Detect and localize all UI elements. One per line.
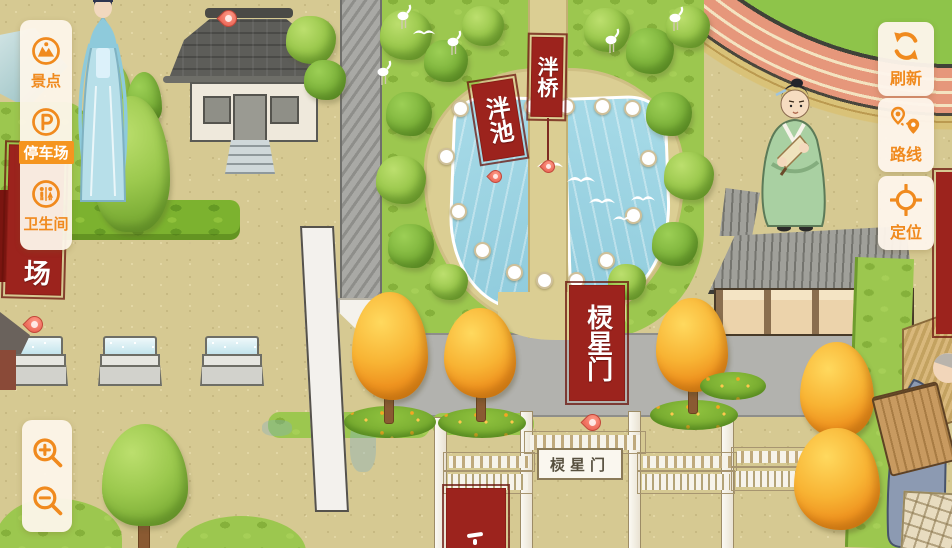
scholar-figure xyxy=(748,78,840,236)
house-door[interactable] xyxy=(233,94,267,144)
corridor-roof xyxy=(340,0,382,300)
marker-banner-panqiao[interactable]: 泮桥 xyxy=(531,38,562,117)
tree xyxy=(376,156,426,204)
egret-icon xyxy=(376,60,392,87)
zoom-control-panel xyxy=(22,420,72,532)
tree xyxy=(652,222,698,266)
grass-patch xyxy=(176,516,306,548)
filter-label: 停车场 xyxy=(19,141,74,164)
filter-label: 景点 xyxy=(31,70,61,91)
wall-corner xyxy=(0,350,16,390)
bird-icon xyxy=(630,192,656,204)
gate-plaque-text: 棂星门 xyxy=(550,454,610,475)
stone-bench xyxy=(98,336,162,388)
zoom-out-icon[interactable] xyxy=(30,483,64,517)
button-label: 刷新 xyxy=(890,65,922,89)
egret-icon xyxy=(604,28,620,55)
statue-figure xyxy=(70,0,136,210)
bird-icon xyxy=(588,194,616,207)
poi-filter-panel: 景点 停车场 卫生间 xyxy=(20,20,72,250)
banner-stroke xyxy=(473,539,477,545)
filter-label: 卫生间 xyxy=(23,213,68,234)
pond-post xyxy=(450,203,467,220)
tree xyxy=(388,224,434,268)
locate-button[interactable]: 定位 xyxy=(878,176,934,250)
toilet-icon xyxy=(31,179,61,209)
tree xyxy=(386,92,432,136)
gate-plaque: 棂星门 xyxy=(537,448,623,480)
marker-banner-lingxingmen[interactable]: 棂星门 xyxy=(570,286,624,400)
marker-banner-text: 场 xyxy=(19,259,48,287)
gate-rail xyxy=(637,470,735,494)
brick-path xyxy=(900,491,952,548)
bird-icon xyxy=(566,172,596,186)
egret-icon xyxy=(446,30,462,57)
bird-icon xyxy=(412,26,436,38)
banner-tassel xyxy=(547,118,549,160)
pond-post xyxy=(640,150,657,167)
bird-icon xyxy=(612,212,636,224)
pond-post xyxy=(452,100,469,117)
egret-icon xyxy=(396,4,412,31)
grass-mound xyxy=(700,372,766,400)
tree xyxy=(664,152,714,200)
route-button[interactable]: 路线 xyxy=(878,98,934,172)
refresh-button[interactable]: 刷新 xyxy=(878,22,934,96)
tree xyxy=(304,60,346,100)
button-label: 路线 xyxy=(890,141,922,165)
pond-post xyxy=(598,252,615,269)
pond-post xyxy=(536,272,553,289)
house-steps xyxy=(225,140,275,174)
gate-beam xyxy=(637,452,737,472)
pond-post xyxy=(506,264,523,281)
marker-banner-text: 棂星门 xyxy=(583,304,610,382)
filter-parking-button[interactable]: 停车场 xyxy=(19,107,74,164)
pond-post xyxy=(474,242,491,259)
scenic-icon xyxy=(31,36,61,66)
house-window xyxy=(270,96,299,124)
locate-icon xyxy=(890,184,922,216)
tree xyxy=(646,92,692,136)
marker-banner-text: 泮桥 xyxy=(536,56,559,98)
house-window xyxy=(203,96,231,124)
marker-banner-text: 泮池 xyxy=(482,94,514,145)
filter-scenic-button[interactable]: 景点 xyxy=(31,36,61,91)
big-tree xyxy=(102,424,188,526)
scenic-map-app: 棂星门 xyxy=(0,0,952,548)
tree xyxy=(430,264,468,300)
route-icon xyxy=(890,106,922,138)
banner-stroke xyxy=(467,532,483,538)
banner-edge-right xyxy=(936,172,952,334)
parking-icon xyxy=(31,107,61,137)
filter-toilet-button[interactable]: 卫生间 xyxy=(23,179,68,234)
pond-post xyxy=(594,98,611,115)
map-canvas[interactable]: 棂星门 xyxy=(0,0,952,548)
wall-shadow xyxy=(262,420,292,436)
pond-post xyxy=(624,100,641,117)
zoom-in-icon[interactable] xyxy=(30,435,64,469)
stone-bench xyxy=(200,336,264,388)
egret-icon xyxy=(668,6,684,33)
marker-banner-partial-bottom[interactable] xyxy=(447,489,505,548)
gate-beam xyxy=(443,452,535,472)
tree xyxy=(462,6,504,46)
button-label: 定位 xyxy=(890,219,922,243)
pond-post xyxy=(438,148,455,165)
refresh-icon xyxy=(890,30,922,62)
tree xyxy=(286,16,336,64)
